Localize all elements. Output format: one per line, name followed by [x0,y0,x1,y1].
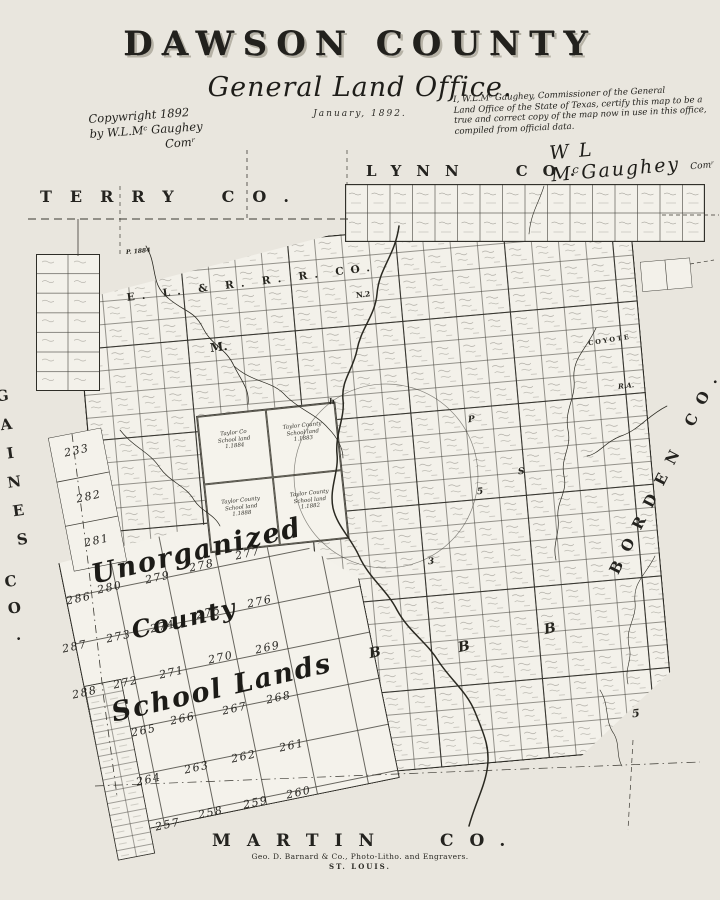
county-label-gaines-suffix: CO. [0,571,29,654]
imprint-line1: Geo. D. Barnard & Co., Photo-Litho. and … [0,852,720,861]
county-label-terry: TERRY CO. [40,187,307,206]
county-label-lynn: LYNN CO. [366,162,590,180]
county-terry-suffix: CO. [222,187,307,206]
county-terry-name: TERRY [40,187,192,206]
county-label-martin: MARTIN CO. [212,831,521,851]
county-label-gaines: GAINES [0,386,34,561]
left-border-strip-grid [36,254,100,391]
boundary-dash [628,740,633,830]
map-page: { "colors":{"paper":"#e9e6de","map_fill"… [0,0,720,900]
county-martin-name: MARTIN [212,831,390,851]
map-letter: P. 1884 [126,247,151,256]
lynn-strip-svg [345,184,705,242]
engraver-imprint: Geo. D. Barnard & Co., Photo-Litho. and … [0,852,720,871]
left-strip-svg [36,254,100,391]
boundary-dash [690,260,714,264]
county-lynn-name: LYNN [366,162,474,180]
lynn-border-strip-grid [345,184,705,242]
signature-title: Comʳ [690,160,715,172]
copyright-note: Copywright 1892 by W.L.Mᶜ Gaughey Comʳ [88,104,204,157]
east-extension-block [640,258,692,292]
map-title: DAWSON COUNTY [0,24,720,64]
taylor-school-land-cell: Taylor CountySchool land1.1883 [266,402,342,477]
east-extension-svg [640,258,692,292]
map-letter: 5 [631,707,640,721]
imprint-line2: ST. LOUIS. [0,862,720,871]
taylor-school-land-cell: Taylor CoSchool land1.1884 [197,410,273,485]
county-lynn-suffix: CO. [516,162,590,180]
county-martin-suffix: CO. [440,831,521,851]
